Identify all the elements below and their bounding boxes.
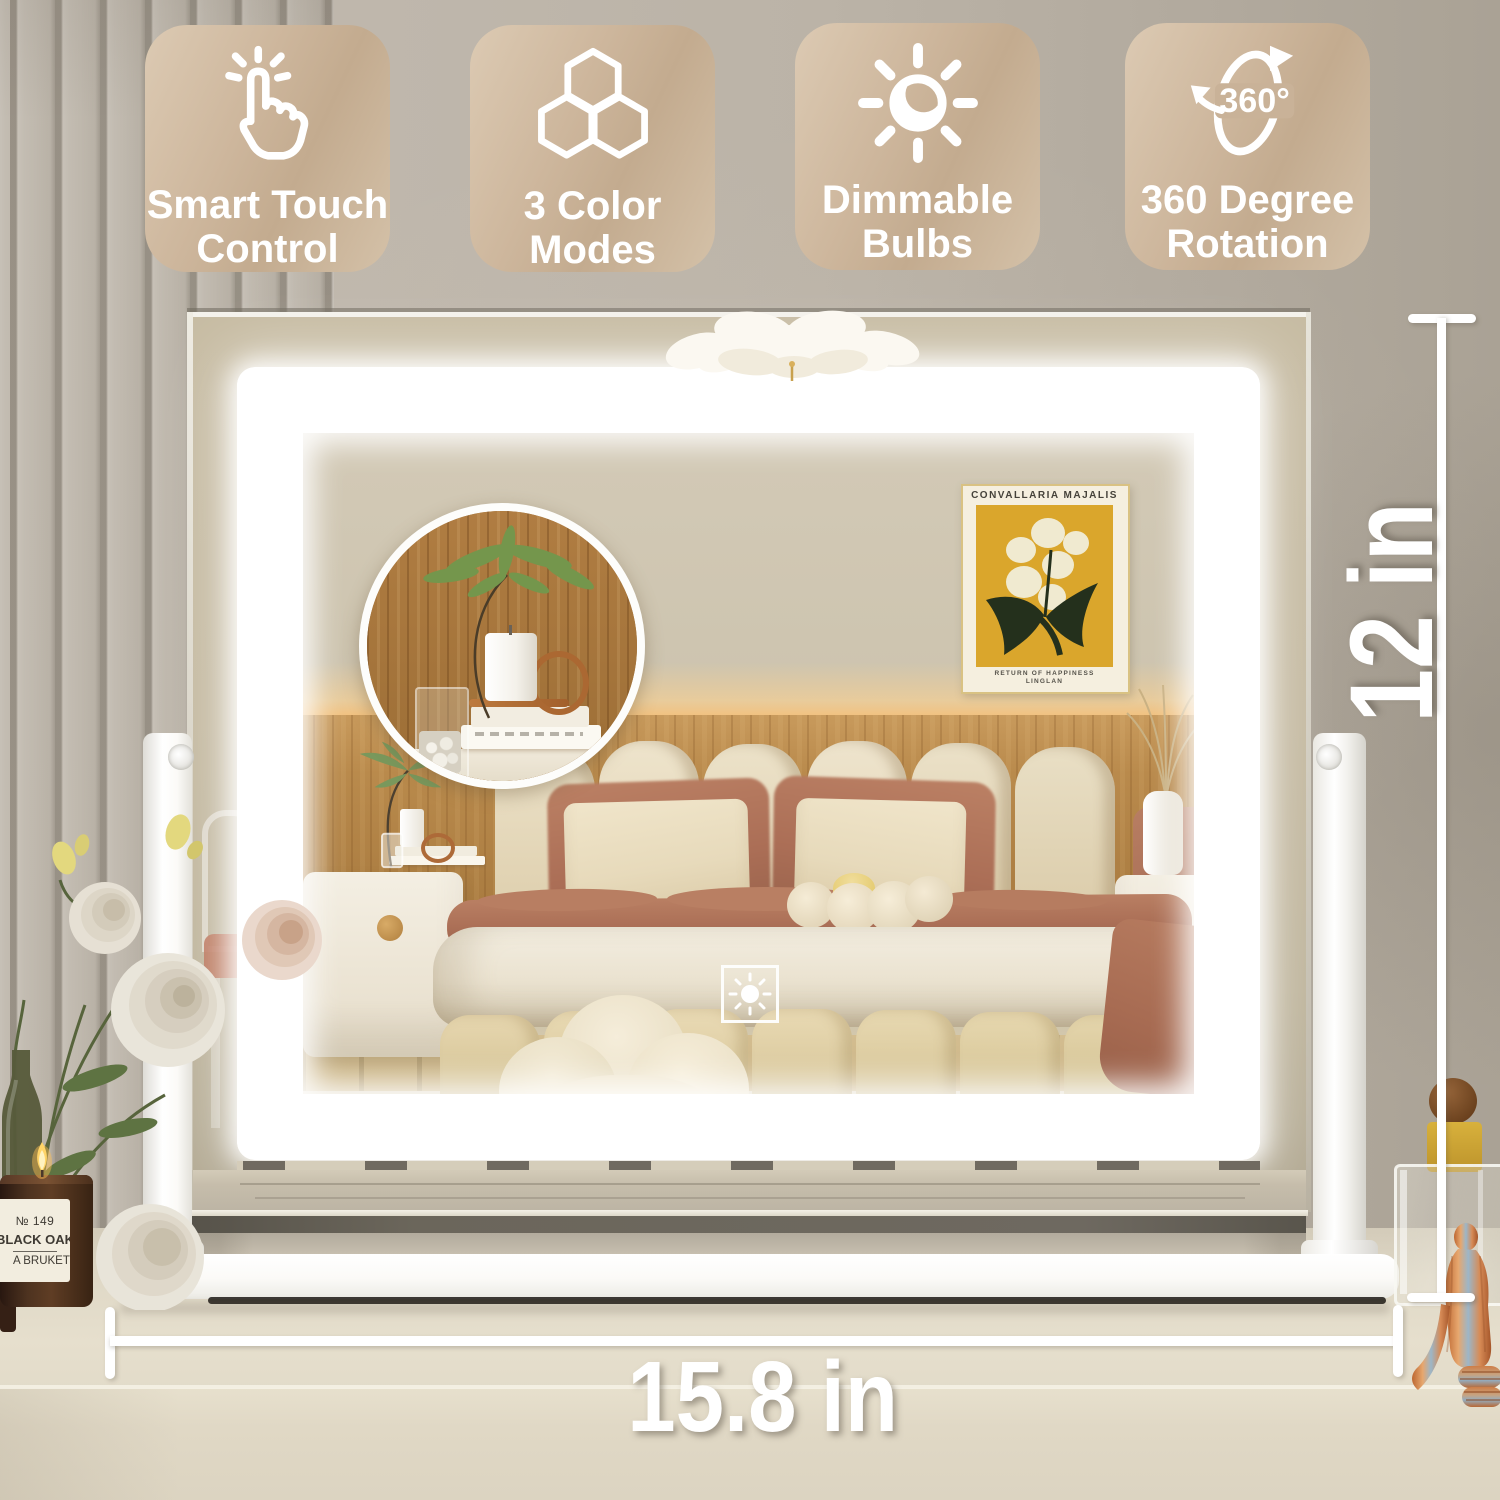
svg-text:360°: 360° [1219,82,1290,120]
